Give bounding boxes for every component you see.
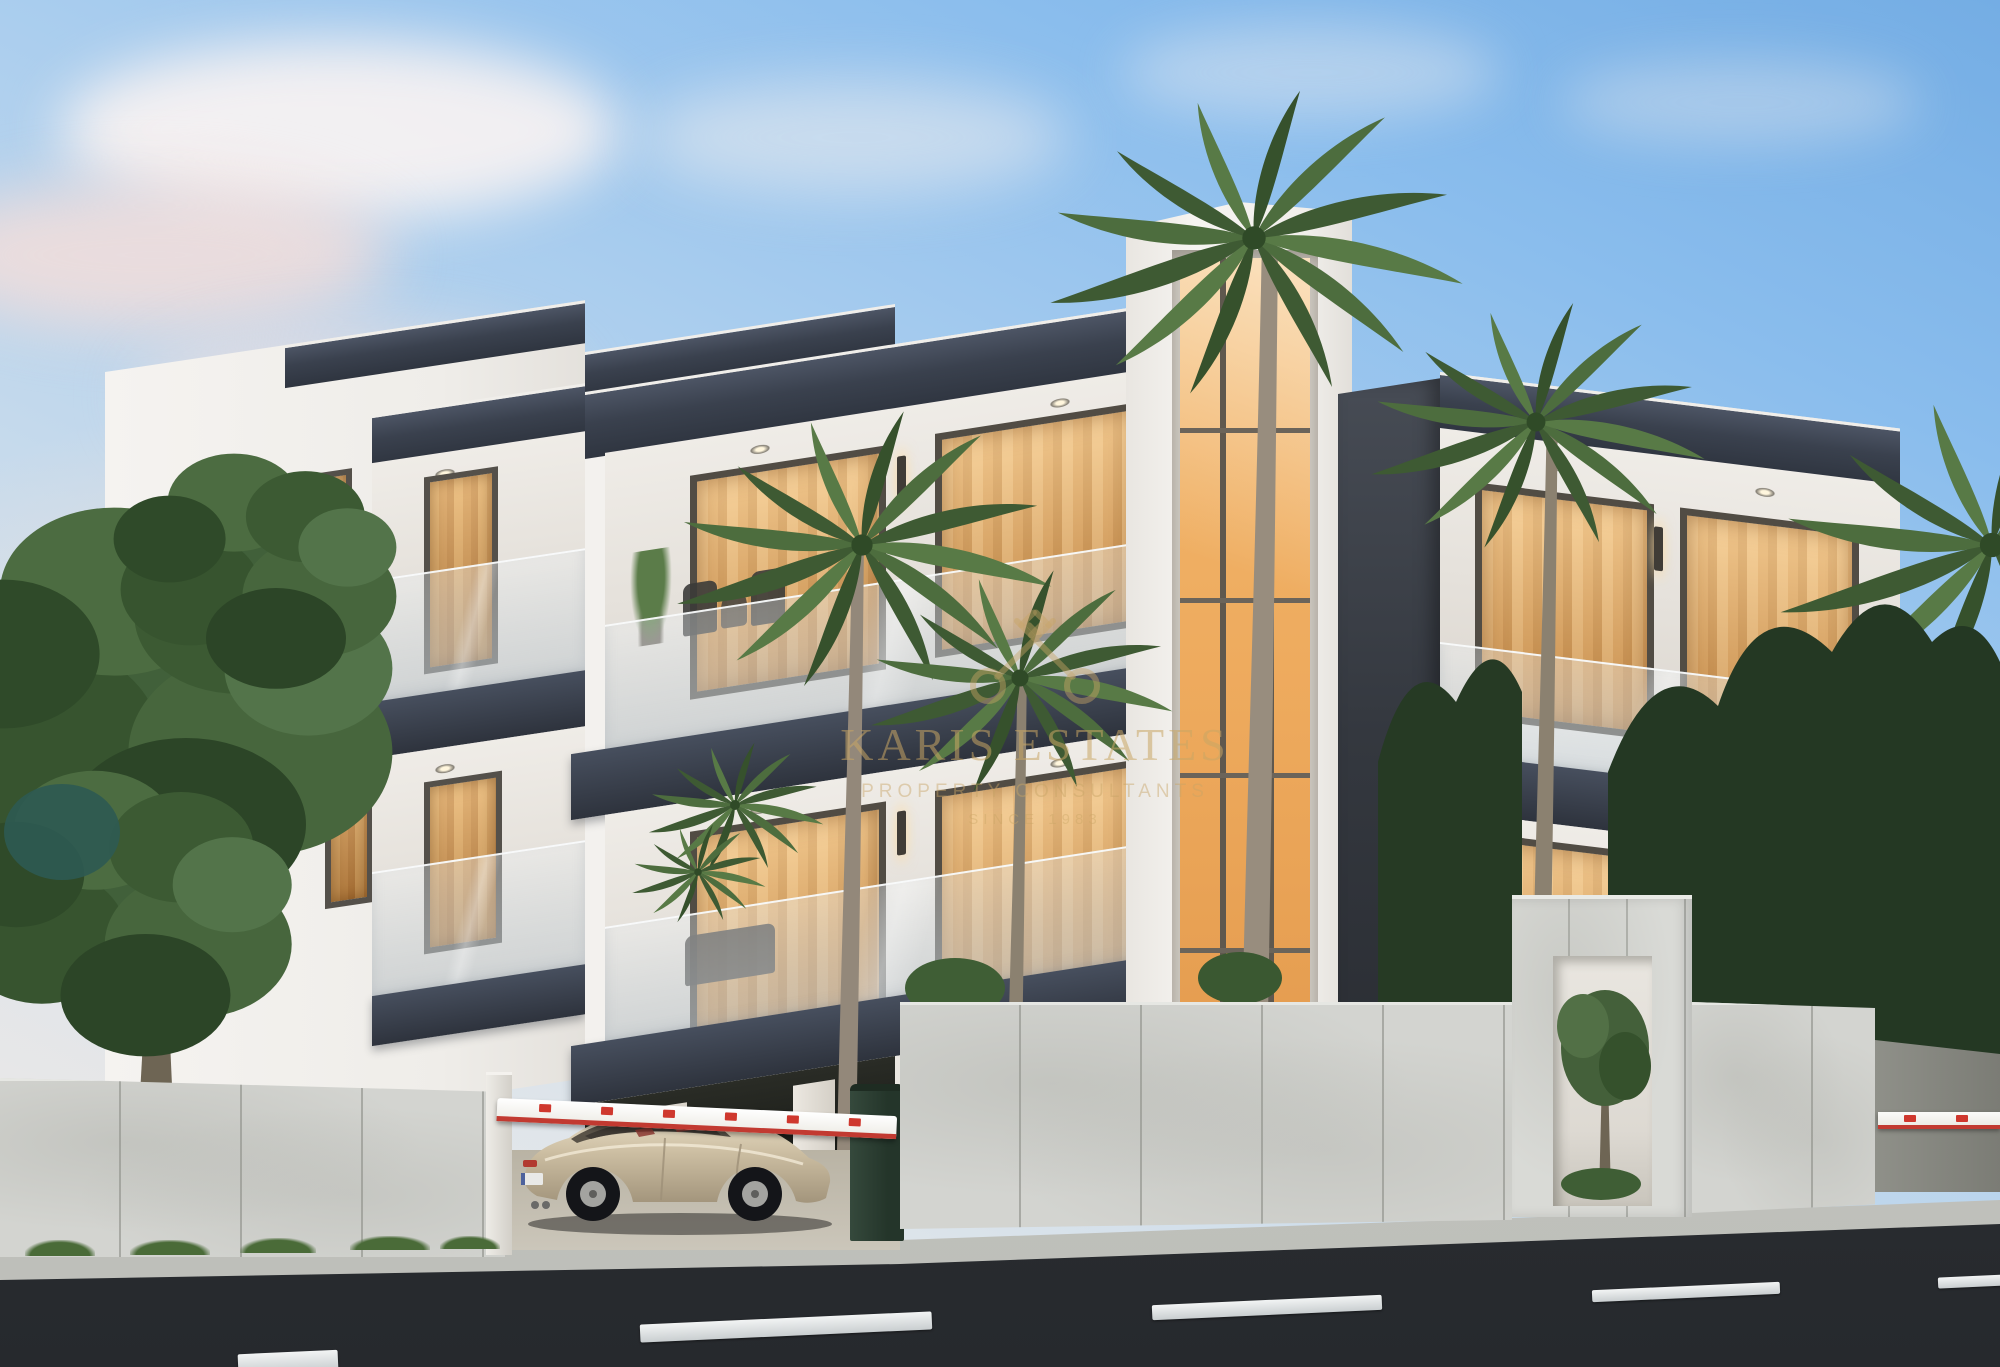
barrier-red-mark [1956, 1115, 1968, 1122]
parked-sedan [515, 1072, 845, 1242]
barrier-red-mark [539, 1104, 551, 1113]
portal-tree [1553, 956, 1652, 1206]
crossed-keys-icon [950, 568, 1120, 718]
watermark: KARIS ESTATES PROPERTY CONSULTANTS SINCE… [810, 568, 1260, 828]
grass-tuft [130, 1240, 210, 1255]
wheelie-bin [850, 1084, 904, 1241]
car-exhaust [531, 1201, 539, 1209]
watermark-title: KARIS ESTATES [810, 718, 1260, 771]
watermark-tagline: SINCE 1983 [810, 811, 1260, 828]
barrier-red-mark [725, 1112, 737, 1121]
barrier-red-mark [787, 1115, 799, 1124]
barrier-red-mark [601, 1107, 613, 1116]
grass-tuft [440, 1236, 500, 1249]
entrance-shrub [1198, 952, 1282, 1004]
architectural-render: KARIS ESTATES PROPERTY CONSULTANTS SINCE… [0, 0, 2000, 1367]
palm-crown [1369, 300, 1707, 551]
grass-tuft [240, 1238, 316, 1253]
portal-opening [1553, 956, 1652, 1206]
courtyard-palm [648, 741, 825, 872]
dark-trees-portal [1378, 659, 1522, 1012]
barrier-red-mark [663, 1110, 675, 1119]
grass-tuft [350, 1236, 430, 1250]
boundary-wall-center [900, 1002, 1512, 1229]
entrance-portal [1512, 895, 1692, 1217]
car-taillight [523, 1160, 537, 1167]
palm-crown [1047, 87, 1466, 397]
grass-tuft [25, 1240, 95, 1256]
boundary-wall-right [1692, 1002, 1875, 1213]
boundary-wall-left [0, 1078, 505, 1257]
barrier-red-stripe [1878, 1125, 2000, 1129]
boom-barrier-arm-2 [1878, 1112, 2000, 1129]
barrier-red-mark [849, 1118, 861, 1127]
barrier-red-mark [1904, 1115, 1916, 1122]
teal-shrub [4, 784, 120, 880]
watermark-subtitle: PROPERTY CONSULTANTS [810, 781, 1260, 803]
